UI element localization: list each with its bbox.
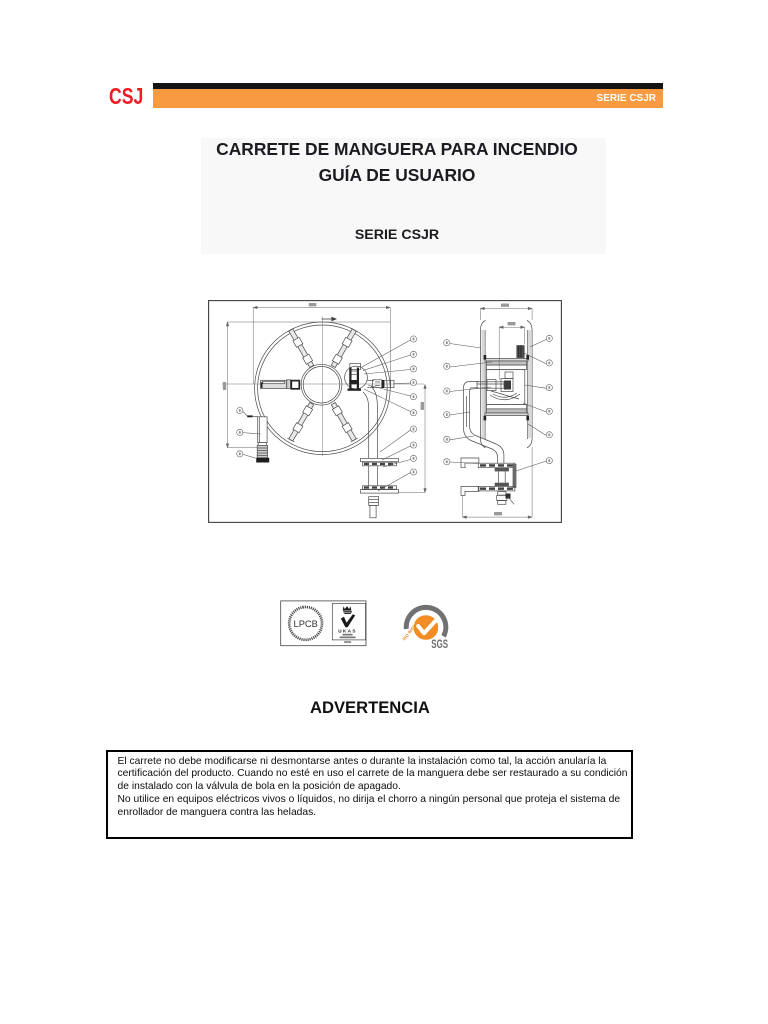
svg-text:SGS: SGS bbox=[431, 639, 448, 651]
svg-text:LPCB: LPCB bbox=[294, 619, 318, 629]
svg-text:UKAS: UKAS bbox=[338, 628, 357, 633]
